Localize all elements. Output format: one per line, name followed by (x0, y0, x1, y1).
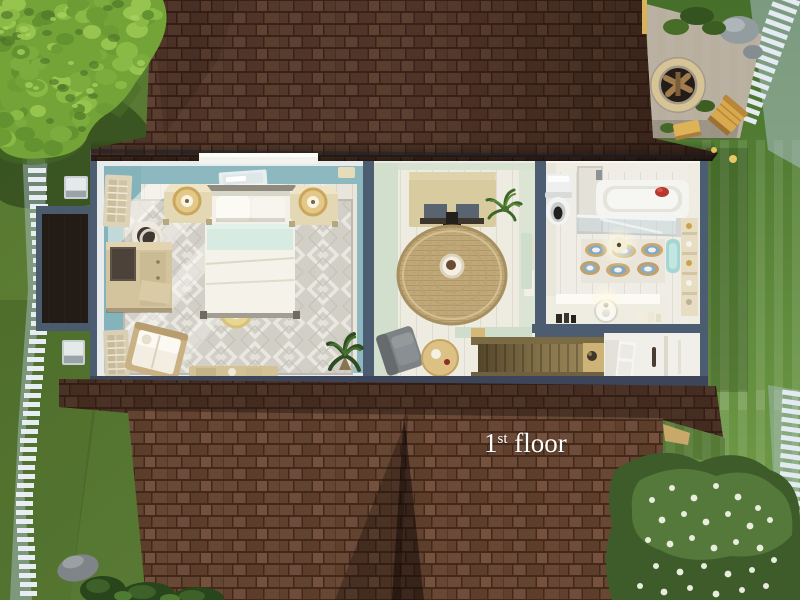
svg-text:1st floor: 1st floor (484, 428, 567, 458)
